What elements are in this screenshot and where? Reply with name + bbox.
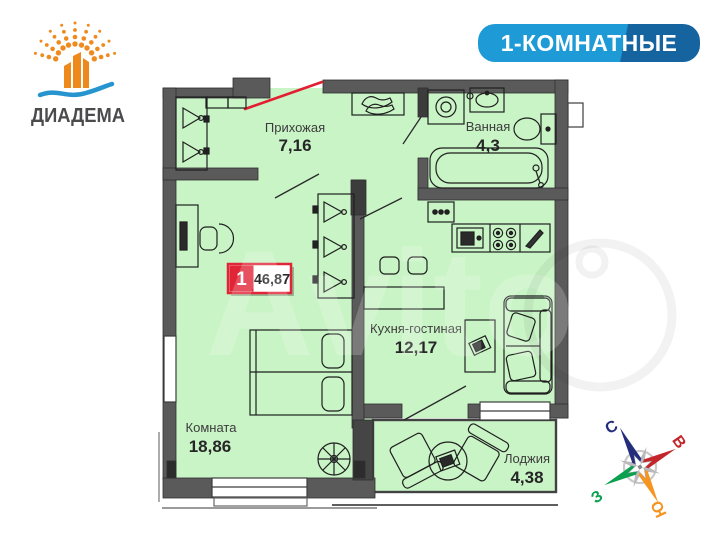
compass-east-label: В [668,433,689,452]
flyer-canvas: ДИАДЕМА [0,0,720,539]
company-logo: ДИАДЕМА [31,22,125,128]
window-sill [214,498,307,506]
wall-segment [323,80,568,93]
monitor-icon [180,222,187,250]
apartment-type-label: 1-КОМНАТНЫЕ [501,30,678,57]
logo-text: ДИАДЕМА [31,105,125,127]
compass-rose: С В З Ю [584,410,693,521]
door-jamb [351,180,366,215]
room-label-loggia: Лоджия [504,451,550,466]
wall-segment [233,78,270,98]
compass-south-label: Ю [648,498,670,520]
wall-segment [418,188,568,200]
window-jamb [167,461,176,478]
wardrobe-knob [204,116,209,122]
room-label-bedroom: Комната [186,420,238,435]
room-area-bedroom: 18,86 [189,437,232,456]
room-area-bathroom: 4,3 [476,136,500,155]
room-area-hallway: 7,16 [278,136,311,155]
apartment-type-badge: 1-КОМНАТНЫЕ [478,24,700,62]
room-label-hallway: Прихожая [265,120,325,135]
vent-shaft [568,103,583,127]
room-area-loggia: 4,38 [510,468,543,487]
logo-buildings-icon [64,52,89,88]
door-jamb [418,88,428,117]
watermark-text: Avito [205,219,574,387]
floor-plan: ДИАДЕМА [0,0,720,539]
window-jamb [354,461,365,478]
watermark: Avito [205,219,672,387]
wall-segment [163,88,176,480]
window [164,336,176,402]
compass-north-label: С [602,417,621,438]
wardrobe-knob [204,148,209,154]
room-label-bathroom: Ванная [466,119,511,134]
wall-segment [364,404,402,418]
decor-plant-icon [318,443,350,475]
compass-west-label: З [588,488,606,508]
